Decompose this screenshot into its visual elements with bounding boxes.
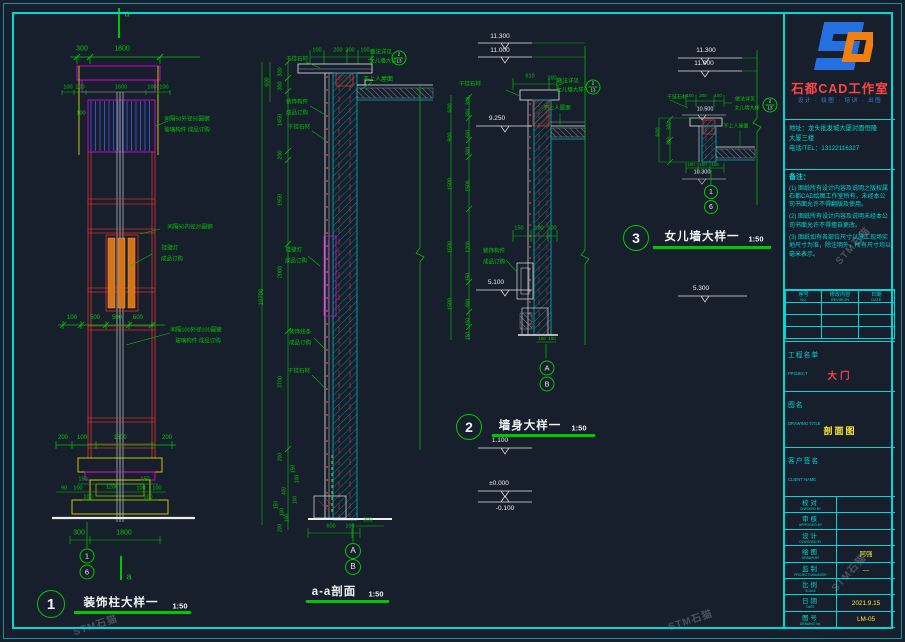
dimension-label: 干挂石材 <box>667 96 687 101</box>
dimension-label: 100 <box>686 94 694 99</box>
revision-cell <box>858 327 894 339</box>
dimension-label: 9.250 <box>489 116 505 123</box>
dimension-label: 装饰线条 <box>289 330 311 336</box>
personnel-label: 比例SCALE <box>785 579 837 594</box>
personnel-label: 图号DRAWING No. <box>785 612 837 627</box>
personnel-label: 设计DESIGNED BY <box>785 530 837 545</box>
revision-header: 日期DATE <box>858 291 894 303</box>
personnel-value: LM-05 <box>837 612 895 627</box>
dimension-label: 100 <box>699 163 707 168</box>
dimension-label: 挂壁灯 <box>286 248 303 254</box>
dimension-label: 10.500 <box>697 107 714 113</box>
dimension-label: 装饰构件 <box>483 249 505 255</box>
dimension-label: 100 <box>312 48 321 54</box>
project-label: 工程名单 <box>788 352 819 359</box>
personnel-row: 日期DATE2021.9.15 <box>785 595 895 611</box>
personnel-value <box>837 497 895 512</box>
title-underline <box>653 246 771 249</box>
dimension-label: 100 <box>714 94 722 99</box>
dimension-label: 150 <box>78 477 87 483</box>
dimension-label: 装饰构件 <box>286 100 308 106</box>
detail-title-text: 装饰柱大样一 <box>84 594 159 610</box>
dimension-label: 1500 <box>467 180 472 191</box>
detail-number-bubble: 2 <box>456 414 482 440</box>
dimension-label: 600 <box>467 130 472 138</box>
revision-table-section: 序号NO.修改内容REVISION日期DATE <box>785 290 895 342</box>
dimension-label: 1600 <box>113 435 126 441</box>
dimension-label: 150 <box>467 318 472 326</box>
dimension-label: 2000 <box>278 266 284 278</box>
personnel-row: 校对CHECKED BY <box>785 497 895 513</box>
detail-scale: 1:50 <box>172 602 187 611</box>
note-1: (1) 图纸所有设计内容及说明之版权属石都CAD绘图工作室所有，未经本公司书面允… <box>789 185 891 210</box>
personnel-value <box>837 513 895 528</box>
detail-scale: 1:50 <box>571 424 586 433</box>
reference-bubble: 6 <box>704 200 718 214</box>
drawing-title-value: 剖面图 <box>785 424 895 437</box>
dimension-label: 干挂石材 <box>288 125 310 131</box>
personnel-value: — <box>837 563 895 578</box>
dimension-label: 300 <box>467 109 472 117</box>
dimension-label: 100 <box>360 48 369 54</box>
logo-section: 石都CAD工作室 设计 · 绘图 · 培训 · 出图 <box>785 12 895 120</box>
dimension-label: 300 <box>467 147 472 155</box>
dimension-label: 1500 <box>448 241 454 253</box>
dimension-label: 玻璃构件 成品订购 <box>175 339 221 345</box>
notes-title: 备注： <box>789 173 891 183</box>
revision-cell <box>822 315 858 327</box>
dimension-label: 5.300 <box>693 286 709 293</box>
detail-callout-bubble: 213 <box>763 98 778 113</box>
dimension-label: 10700 <box>259 289 265 306</box>
dimension-label: 300 <box>278 81 284 90</box>
dimension-label: 100 <box>136 486 145 492</box>
revision-cell <box>786 315 822 327</box>
dimension-label: 100 <box>143 495 152 501</box>
dimension-label: 女儿墙大样 <box>556 88 584 94</box>
dimension-label: 10.300 <box>694 170 711 176</box>
dimension-label: 200 <box>279 524 284 532</box>
title-underline <box>306 600 389 603</box>
revision-cell <box>786 327 822 339</box>
dimension-label: a <box>124 10 129 19</box>
address-line2: 大厦三楼 <box>789 134 891 144</box>
dimension-label: 100 <box>538 337 546 342</box>
revision-cell <box>858 303 894 315</box>
notes-section: 备注： (1) 图纸所有设计内容及说明之版权属石都CAD绘图工作室所有，未经本公… <box>785 170 895 290</box>
dimension-label: 不上人屋面 <box>543 106 571 112</box>
dimension-label: 90 <box>61 486 67 492</box>
dimension-label: 成品订购 <box>286 111 308 117</box>
dimension-label: 干挂石材 <box>286 57 308 63</box>
personnel-row: 比例SCALE <box>785 579 895 595</box>
dimension-label: 11.300 <box>696 48 715 55</box>
reference-bubble: B <box>540 377 555 392</box>
dimension-label: -0.100 <box>496 506 514 513</box>
personnel-label: 校对CHECKED BY <box>785 497 837 512</box>
dimension-label: 600 <box>265 77 271 86</box>
dimension-label: 3700 <box>278 376 284 388</box>
project-section: 工程名单 PROJECT 大门 <box>785 342 895 392</box>
dimension-label: 100 <box>63 85 72 91</box>
reference-bubble: A <box>345 543 361 559</box>
drawing-linework <box>0 0 905 642</box>
note-3: (3) 图纸如有各部位尺寸以施工现场实地尺寸为准，除注明外，所有尺寸均以毫米表示… <box>789 234 891 259</box>
detail-scale: 1:50 <box>748 235 763 244</box>
revision-cell <box>786 303 822 315</box>
personnel-label: 绘图DRAWN BY <box>785 546 837 561</box>
client-section: 客户签名 CLIENT NAME <box>785 448 895 497</box>
dimension-label: 100 <box>547 76 556 82</box>
dimension-label: 200 <box>333 48 342 54</box>
revision-header: 修改内容REVISION <box>822 291 858 303</box>
personnel-row: 图号DRAWING No.LM-05 <box>785 612 895 628</box>
dimension-label: 100 <box>345 524 354 530</box>
dimension-label: 200 <box>162 435 172 441</box>
reference-bubble: B <box>345 559 361 575</box>
personnel-label: 日期DATE <box>785 595 837 610</box>
dimension-label: 610 <box>525 74 534 80</box>
dimension-label: 900 <box>448 132 454 141</box>
dimension-label: 11.300 <box>490 34 509 41</box>
revision-cell <box>822 303 858 315</box>
dimension-label: 不上人屋面 <box>363 77 393 83</box>
personnel-label: 审核APPROVED BY <box>785 513 837 528</box>
address-line1: 地址：龙头批发城大厦对面恒隆 <box>789 124 891 134</box>
detail-number-bubble: 3 <box>623 225 649 251</box>
dimension-label: 100 <box>294 496 299 504</box>
revision-cell <box>822 327 858 339</box>
dimension-label: 100 <box>548 337 556 342</box>
dimension-label: 干挂石材 <box>459 82 481 88</box>
dimension-label: 600 <box>133 315 143 321</box>
dimension-label: 1800 <box>116 530 132 537</box>
detail-scale: 1:50 <box>368 590 383 599</box>
dimension-label: 100 <box>286 514 291 522</box>
drawing-title-label: 图名 <box>788 402 804 409</box>
dimension-label: 150 <box>292 465 297 473</box>
client-label-en: CLIENT NAME <box>788 477 816 482</box>
dimension-label: a <box>126 573 131 582</box>
dimension-label: 1950 <box>278 194 284 206</box>
revision-header: 序号NO. <box>786 291 822 303</box>
dimension-label: 成品订购 <box>161 257 183 263</box>
dimension-label: 600 <box>448 103 454 112</box>
client-label: 客户签名 <box>788 458 819 465</box>
dimension-label: 600 <box>656 127 662 136</box>
dimension-label: 1600 <box>115 85 127 91</box>
dimension-label: ±0.000 <box>489 481 509 488</box>
dimension-label: 做法详见 <box>557 79 579 85</box>
dimension-label: 11.000 <box>694 61 713 68</box>
dimension-label: 100 <box>711 163 719 168</box>
detail-number-bubble: 1 <box>37 590 65 618</box>
dimension-label: 200 <box>278 150 284 159</box>
dimension-label: 1500 <box>448 178 454 190</box>
dimension-label: 150 <box>140 477 149 483</box>
detail-callout-bubble: 213 <box>392 51 407 66</box>
drawing-title-section: 图名 DRAWING TITLE 剖面图 <box>785 392 895 448</box>
dimension-label: 300 <box>363 518 372 524</box>
dimension-label: 100 <box>152 486 161 492</box>
revision-table: 序号NO.修改内容REVISION日期DATE <box>785 290 895 339</box>
dimension-label: 间隔100外径100圆管 <box>170 328 221 334</box>
detail-title-text: 女儿墙大样一 <box>665 228 740 244</box>
personnel-value <box>837 530 895 545</box>
studio-tagline: 设计 · 绘图 · 培训 · 出图 <box>785 96 895 104</box>
dimension-label: 女儿墙大样 <box>734 107 759 112</box>
dimension-label: 成品订购 <box>285 259 307 265</box>
reference-bubble: A <box>540 361 555 376</box>
personnel-value: 阿强 <box>837 546 895 561</box>
dimension-label: 200 <box>699 94 707 99</box>
dimension-label: 100 <box>547 226 556 232</box>
dimension-label: 100 <box>296 475 301 483</box>
personnel-section: 校对CHECKED BY审核APPROVED BY设计DESIGNED BY绘图… <box>785 497 895 629</box>
dimension-label: 11.000 <box>490 48 509 55</box>
dimension-label: 成品订购 <box>483 260 505 266</box>
dimension-label: 100 <box>687 163 695 168</box>
dimension-label: 1500 <box>448 298 454 310</box>
dimension-label: 200 <box>58 435 68 441</box>
reference-bubble: 1 <box>704 185 718 199</box>
dimension-label: 100 <box>147 85 156 91</box>
dimension-label: 不上人屋面 <box>723 125 748 130</box>
dimension-label: 100 <box>76 111 85 117</box>
dimension-label: 500 <box>90 315 100 321</box>
dimension-label: 挂壁灯 <box>162 246 179 252</box>
dimension-label: 600 <box>326 524 335 530</box>
personnel-label: 监制PROJECT MANAGER <box>785 563 837 578</box>
reference-bubble: 1 <box>80 549 95 564</box>
title-block-panel: 石都CAD工作室 设计 · 绘图 · 培训 · 出图 地址：龙头批发城大厦对面恒… <box>783 12 895 629</box>
personnel-row: 监制PROJECT MANAGER— <box>785 563 895 579</box>
personnel-value: 2021.9.15 <box>837 595 895 610</box>
dimension-label: 100 <box>75 85 84 91</box>
personnel-row: 审核APPROVED BY <box>785 513 895 529</box>
detail-title-text: a-a剖面 <box>312 583 357 599</box>
dimension-label: 150 <box>514 226 523 232</box>
dimension-label: 干挂石材 <box>288 369 310 375</box>
dimension-label: 做法详见 <box>735 98 755 103</box>
dimension-label: 100 <box>159 85 168 91</box>
dimension-label: 300 <box>668 137 673 145</box>
dimension-label: 300 <box>345 48 354 54</box>
dimension-label: 150 <box>467 273 472 281</box>
dimension-label: 150 <box>467 332 472 340</box>
dimension-label: 做法详见 <box>370 50 392 56</box>
dimension-label: 300 <box>278 67 284 76</box>
dimension-label: 玻璃构件 成品订购 <box>164 128 210 134</box>
reference-bubble: 6 <box>80 565 95 580</box>
dimension-label: 400 <box>283 487 288 495</box>
dimension-label: 1200 <box>467 241 472 252</box>
dimension-label: 100 <box>73 486 82 492</box>
detail-callout-bubble: 213 <box>586 80 601 95</box>
dimension-label: 900 <box>467 299 472 307</box>
dimension-label: 100 <box>534 226 543 232</box>
personnel-row: 绘图DRAWN BY阿强 <box>785 546 895 562</box>
dimension-label: 5.100 <box>488 280 504 287</box>
dimension-label: 300 <box>76 46 88 53</box>
dimension-label: 500 <box>112 315 122 321</box>
title-underline <box>74 611 191 614</box>
studio-logo-icon <box>807 18 873 74</box>
phone: 电话/TEL：13122116327 <box>789 144 891 154</box>
dimension-label: 300 <box>668 122 673 130</box>
revision-cell <box>858 315 894 327</box>
dimension-label: 1.100 <box>492 438 508 445</box>
studio-name: 石都CAD工作室 <box>785 78 895 97</box>
dimension-label: 成品订购 <box>289 341 311 347</box>
personnel-row: 设计DESIGNED BY <box>785 530 895 546</box>
dimension-label: 200 <box>279 453 284 461</box>
detail-title-text: 墙身大样一 <box>499 417 562 433</box>
dimension-label: 100 <box>77 435 87 441</box>
cad-sheet: a30018001001001600100100100间隔50外径50圆钢玻璃构… <box>0 0 905 642</box>
dimension-label: 100 <box>83 495 92 501</box>
dimension-label: 1200 <box>106 485 118 491</box>
dimension-label: 1450 <box>278 114 284 126</box>
note-2: (2) 图纸所有设计内容及说明未经本公司书面允许不得擅自更改。 <box>789 213 891 230</box>
dimension-label: 1800 <box>114 46 130 53</box>
dimension-label: 间隔50外径50圆钢 <box>164 117 209 123</box>
address-section: 地址：龙头批发城大厦对面恒隆 大厦三楼 电话/TEL：13122116327 <box>785 120 895 170</box>
dimension-label: 100 <box>67 315 77 321</box>
dimension-label: 300 <box>467 97 472 105</box>
project-value: 大门 <box>785 368 895 382</box>
dimension-label: 间隔50内径20圆钢 <box>167 225 212 231</box>
personnel-value <box>837 579 895 594</box>
dimension-label: 300 <box>73 530 85 537</box>
title-underline <box>492 434 595 437</box>
